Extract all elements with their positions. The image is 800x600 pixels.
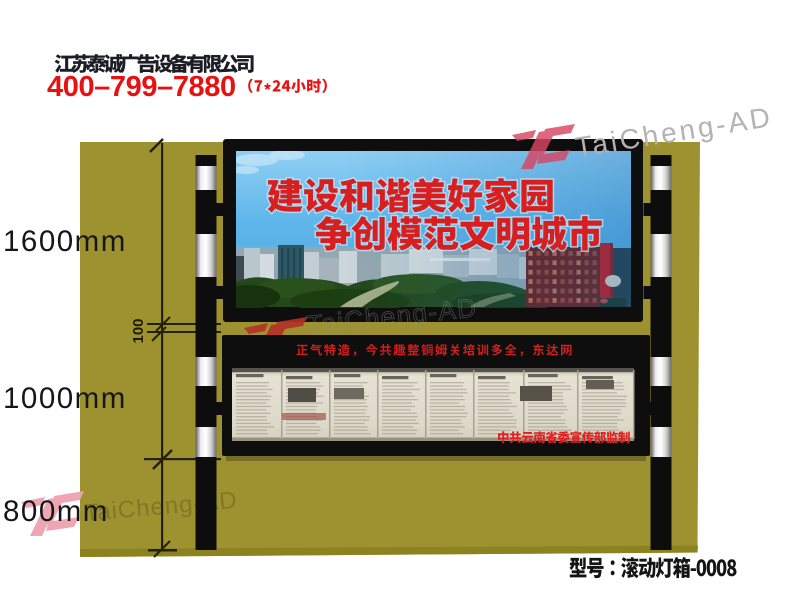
svg-text:1000mm: 1000mm bbox=[3, 382, 127, 415]
svg-text:400–799–7880: 400–799–7880 bbox=[47, 71, 236, 103]
svg-text:100: 100 bbox=[130, 318, 147, 343]
svg-text:800mm: 800mm bbox=[3, 495, 109, 528]
svg-text:1600mm: 1600mm bbox=[3, 225, 127, 258]
